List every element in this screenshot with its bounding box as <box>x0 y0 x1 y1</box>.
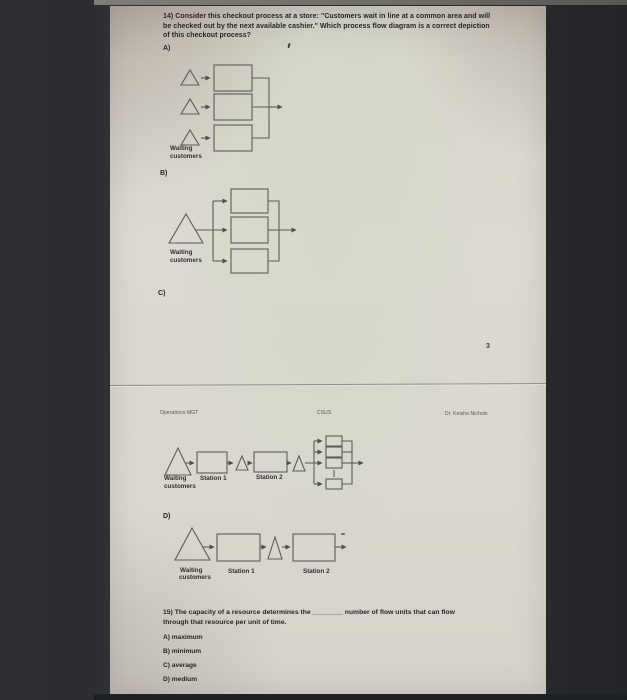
diagram-option-d: Waiting customers Station 1 Station 2 <box>170 524 355 582</box>
station-2-box <box>254 452 287 472</box>
cashier-box <box>326 479 342 489</box>
station-2-box <box>293 534 335 561</box>
station-1-label: Station 1 <box>228 568 255 575</box>
waiting-customers-label: Waiting <box>180 567 203 574</box>
merge-connector <box>252 78 269 138</box>
desk-edge-top <box>94 0 627 5</box>
desk-edge-bottom <box>94 694 627 700</box>
option-c-label: C) <box>158 290 165 297</box>
cashier-box <box>326 458 342 468</box>
process-box <box>214 125 252 151</box>
process-box <box>231 217 268 243</box>
header-instructor: Dr. Keisha Nichols <box>445 411 488 417</box>
process-box <box>214 65 252 91</box>
queue-triangle-icon <box>181 99 199 114</box>
queue-triangle-icon <box>175 528 210 560</box>
process-box <box>231 249 268 273</box>
q15-option-a: A) maximum <box>163 634 203 641</box>
question-14-text: 14) Consider this checkout process at a … <box>163 12 527 41</box>
buffer-triangle-icon <box>268 537 282 559</box>
q15-option-d: D) medium <box>163 676 197 683</box>
waiting-customers-label: Waiting <box>170 249 193 256</box>
q15-option-b: B) minimum <box>163 648 201 655</box>
question-14-line-2: be checked out by the next available cas… <box>163 22 527 32</box>
waiting-customers-label: customers <box>179 574 211 581</box>
photo-of-exam-on-desk: 14) Consider this checkout process at a … <box>0 0 627 700</box>
buffer-triangle-icon <box>293 456 305 471</box>
station-1-box <box>197 452 227 473</box>
diagram-option-a: Waiting customers <box>160 58 300 163</box>
option-b-label: B) <box>160 170 167 177</box>
diagram-option-b: Waiting customers <box>165 185 310 277</box>
queue-triangle-icon <box>165 448 191 475</box>
question-14-line-1: 14) Consider this checkout process at a … <box>163 12 527 22</box>
page-number: 3 <box>486 343 490 350</box>
waiting-customers-label: customers <box>170 153 202 160</box>
question-14-line-3: of this checkout process? <box>163 31 527 41</box>
queue-triangle-icon <box>181 130 199 145</box>
station-1-label: Station 1 <box>200 475 227 482</box>
queue-triangle-icon <box>169 214 203 243</box>
question-15-line-2: through that resource per unit of time. <box>163 618 483 628</box>
waiting-customers-label: Waiting <box>164 475 187 482</box>
waiting-customers-label: customers <box>170 257 202 264</box>
process-box <box>214 94 252 120</box>
station-1-box <box>217 534 260 561</box>
option-d-label: D) <box>163 513 170 520</box>
queue-triangle-icon <box>181 70 199 85</box>
header-course: Operations MGT <box>160 410 198 416</box>
merge-connector <box>268 201 279 261</box>
station-2-label: Station 2 <box>303 568 330 575</box>
station-2-label: Station 2 <box>256 474 283 481</box>
question-15-line-1: 15) The capacity of a resource determine… <box>163 608 483 618</box>
q15-option-c: C) average <box>163 662 197 669</box>
question-15-text: 15) The capacity of a resource determine… <box>163 608 483 627</box>
cashier-box <box>326 436 342 446</box>
waiting-customers-label: Waiting <box>170 145 193 152</box>
diagram-option-c: Waiting customers Station 1 Station 2 <box>160 432 375 498</box>
option-a-label: A) <box>163 45 170 52</box>
buffer-triangle-icon <box>236 456 248 470</box>
header-school: CSUS <box>317 410 331 416</box>
cashier-box <box>326 447 342 457</box>
waiting-customers-label: customers <box>164 483 196 490</box>
process-box <box>231 189 268 213</box>
